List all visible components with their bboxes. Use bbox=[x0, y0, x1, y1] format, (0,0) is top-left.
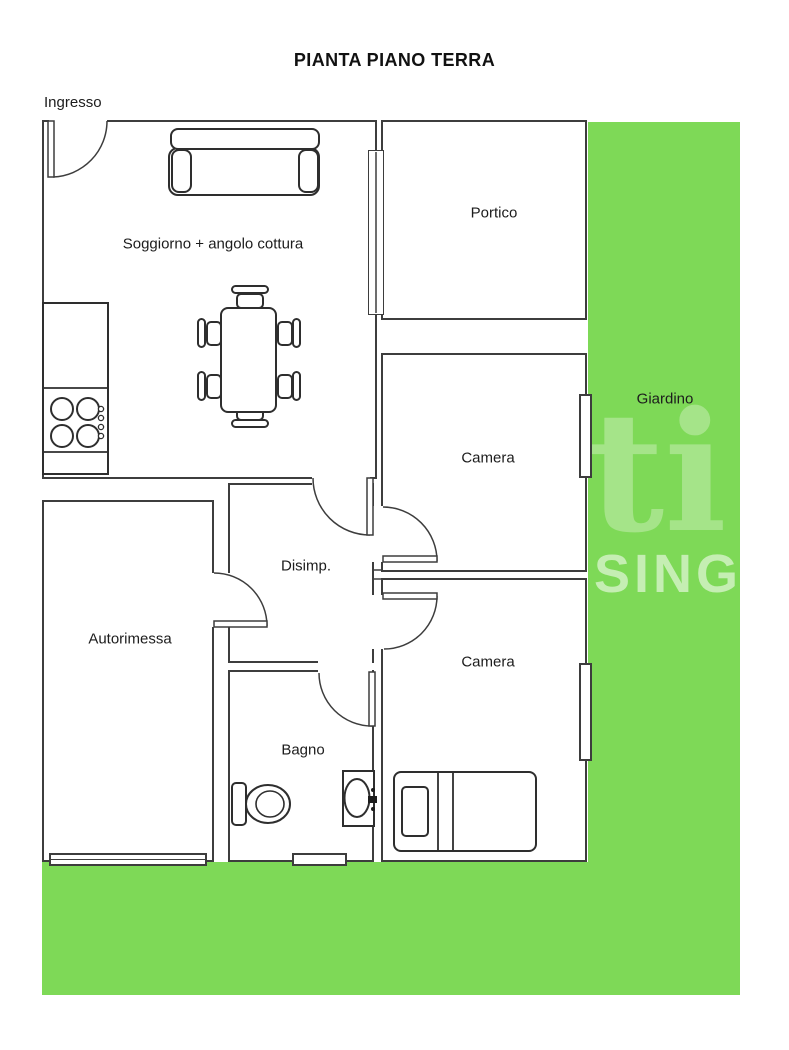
chair-seat bbox=[277, 321, 293, 346]
label-camera-top: Camera bbox=[461, 450, 514, 467]
chair-back bbox=[197, 318, 206, 348]
garage-door bbox=[49, 853, 207, 866]
label-camera-bottom: Camera bbox=[461, 654, 514, 671]
watermark-text: HISING bbox=[588, 547, 740, 601]
chair-back bbox=[231, 419, 269, 428]
sliding-door-portico bbox=[368, 150, 384, 315]
floor-plan: PIANTA PIANO TERRA Ingresso ti HISING Gi… bbox=[0, 0, 789, 1050]
window-camera-bottom bbox=[579, 663, 592, 761]
door-opening-camera-top bbox=[370, 506, 386, 562]
chair-seat bbox=[277, 374, 293, 399]
kitchen-counter bbox=[42, 302, 109, 475]
chair-back bbox=[231, 285, 269, 294]
label-giardino: Giardino bbox=[637, 391, 694, 408]
toilet-tank bbox=[231, 782, 247, 826]
room-bagno bbox=[228, 670, 374, 862]
bed-pillow bbox=[401, 786, 429, 837]
door-opening-soggiorno-disimpegno bbox=[312, 475, 370, 487]
label-portico: Portico bbox=[471, 205, 518, 222]
sofa-armrest-right bbox=[298, 149, 319, 193]
door-opening-bagno bbox=[318, 659, 372, 675]
door-opening-autorimessa bbox=[210, 573, 232, 627]
room-autorimessa bbox=[42, 500, 214, 862]
chair-back bbox=[292, 318, 301, 348]
watermark-logo: ti bbox=[588, 390, 727, 555]
door-opening-camera-bottom bbox=[370, 595, 386, 649]
label-autorimessa: Autorimessa bbox=[88, 631, 171, 648]
sofa-backrest bbox=[170, 128, 320, 150]
label-ingresso: Ingresso bbox=[44, 94, 102, 111]
garage-door-line bbox=[51, 859, 205, 860]
plan-title: PIANTA PIANO TERRA bbox=[0, 50, 789, 71]
chair-back bbox=[292, 371, 301, 401]
door-opening-ingresso bbox=[49, 117, 107, 124]
sofa-armrest-left bbox=[171, 149, 192, 193]
label-disimpegno: Disimp. bbox=[281, 558, 331, 575]
window-camera-top bbox=[579, 394, 592, 478]
sink-cabinet bbox=[342, 770, 375, 827]
dining-table bbox=[220, 307, 277, 413]
window-bagno bbox=[292, 853, 347, 866]
giardino-area-bottom bbox=[42, 862, 740, 995]
label-soggiorno: Soggiorno + angolo cottura bbox=[123, 236, 304, 253]
label-bagno: Bagno bbox=[281, 742, 324, 759]
chair-back bbox=[197, 371, 206, 401]
